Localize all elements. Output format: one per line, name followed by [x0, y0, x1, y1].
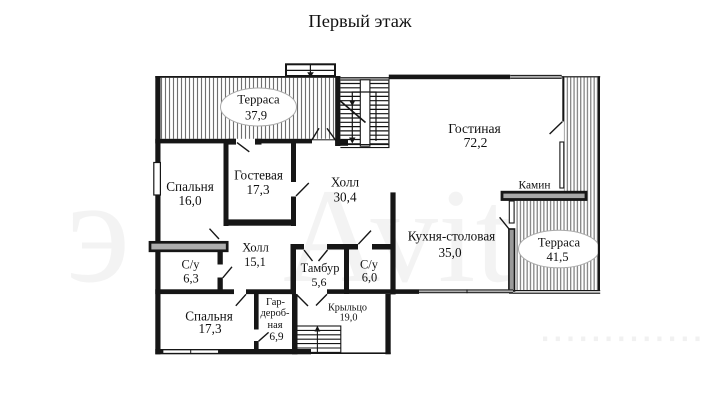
- svg-text:Кухня-столовая: Кухня-столовая: [408, 229, 496, 244]
- svg-text:16,0: 16,0: [178, 193, 201, 208]
- svg-text:6,0: 6,0: [362, 271, 378, 285]
- svg-text:17,3: 17,3: [198, 321, 221, 336]
- svg-text:Первый этаж: Первый этаж: [308, 11, 411, 31]
- svg-text:Терраса: Терраса: [538, 236, 581, 250]
- svg-text:5,6: 5,6: [312, 275, 327, 289]
- svg-text:дероб-: дероб-: [260, 308, 290, 319]
- svg-text:ная: ная: [268, 320, 283, 331]
- svg-text:30,4: 30,4: [333, 190, 356, 205]
- svg-text:17,3: 17,3: [246, 182, 269, 197]
- svg-text:Камин: Камин: [519, 179, 551, 191]
- svg-text:37,9: 37,9: [245, 109, 267, 123]
- svg-text:19,0: 19,0: [340, 313, 358, 324]
- svg-text:Тамбур: Тамбур: [301, 261, 340, 275]
- svg-text:С/у: С/у: [182, 257, 201, 271]
- svg-text:Гостиная: Гостиная: [448, 121, 501, 136]
- svg-text:Холл: Холл: [331, 175, 360, 190]
- svg-text:э: э: [66, 148, 130, 314]
- svg-text:6,3: 6,3: [183, 272, 199, 286]
- svg-text:Холл: Холл: [242, 241, 269, 255]
- svg-text:С/у: С/у: [360, 257, 379, 271]
- svg-text:Терраса: Терраса: [237, 93, 280, 107]
- svg-text:41,5: 41,5: [546, 250, 568, 264]
- svg-text:15,1: 15,1: [244, 255, 266, 269]
- svg-text:Гостевая: Гостевая: [234, 168, 283, 183]
- svg-text:72,2: 72,2: [464, 135, 488, 150]
- svg-text:6,9: 6,9: [269, 331, 284, 343]
- svg-text:Гар-: Гар-: [266, 297, 286, 308]
- svg-text:Спальня: Спальня: [166, 179, 214, 194]
- svg-text:35,0: 35,0: [438, 245, 461, 260]
